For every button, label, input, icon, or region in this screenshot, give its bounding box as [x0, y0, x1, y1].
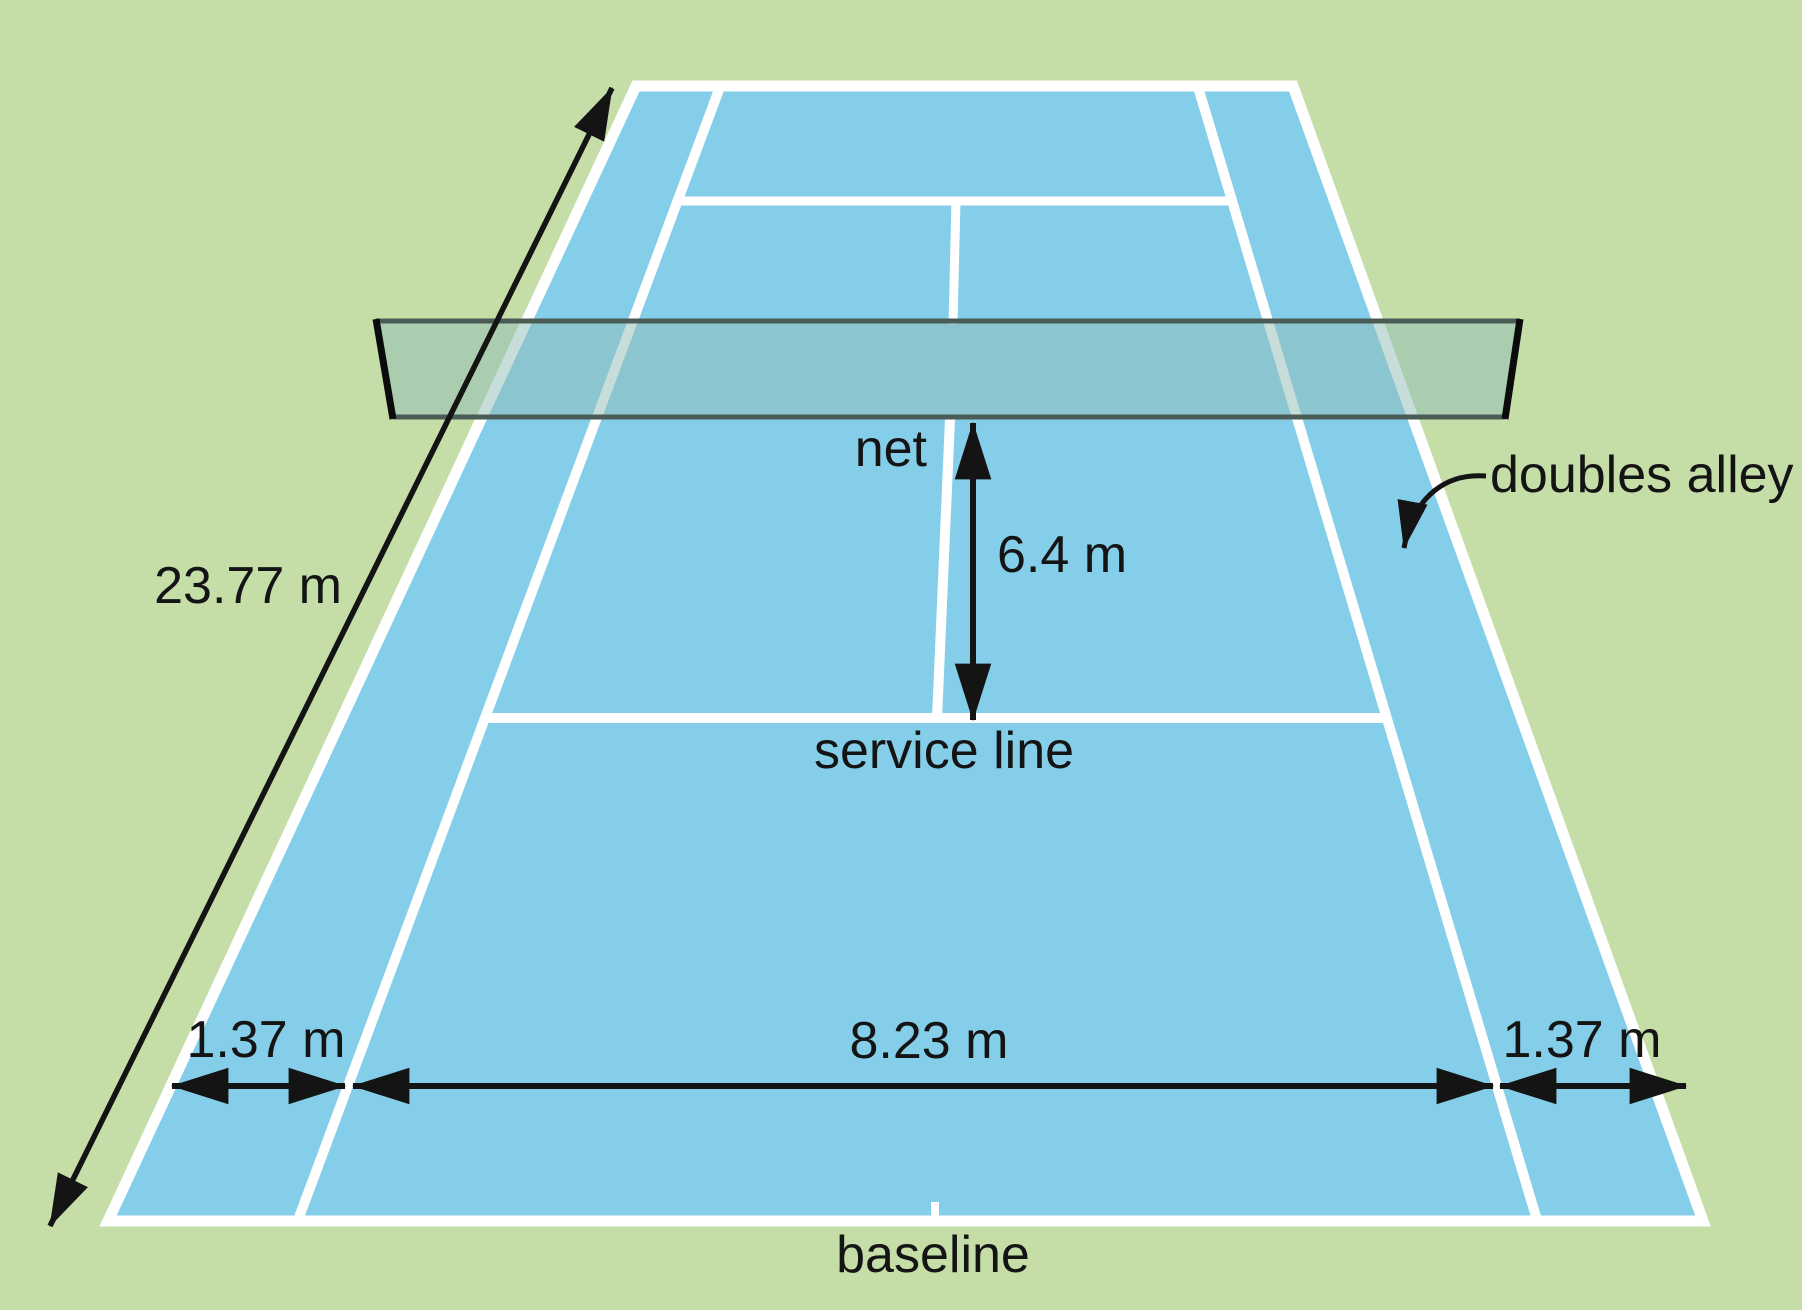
alley-width-left-label: 1.37 m	[187, 1011, 346, 1069]
net-label: net	[855, 420, 928, 478]
alley-width-right-label: 1.37 m	[1503, 1011, 1662, 1069]
baseline-label: baseline	[836, 1226, 1030, 1284]
service-line-label: service line	[814, 722, 1074, 780]
net-to-service-label: 6.4 m	[997, 526, 1127, 584]
net-mesh	[376, 321, 1520, 417]
court-length-label: 23.77 m	[154, 557, 342, 615]
net-band	[376, 319, 1520, 419]
singles-width-label: 8.23 m	[850, 1012, 1009, 1070]
tennis-court-diagram: 23.77 m net doubles alley 6.4 m service …	[0, 0, 1802, 1310]
doubles-alley-label: doubles alley	[1490, 446, 1794, 504]
center-service-line-far	[953, 201, 956, 324]
